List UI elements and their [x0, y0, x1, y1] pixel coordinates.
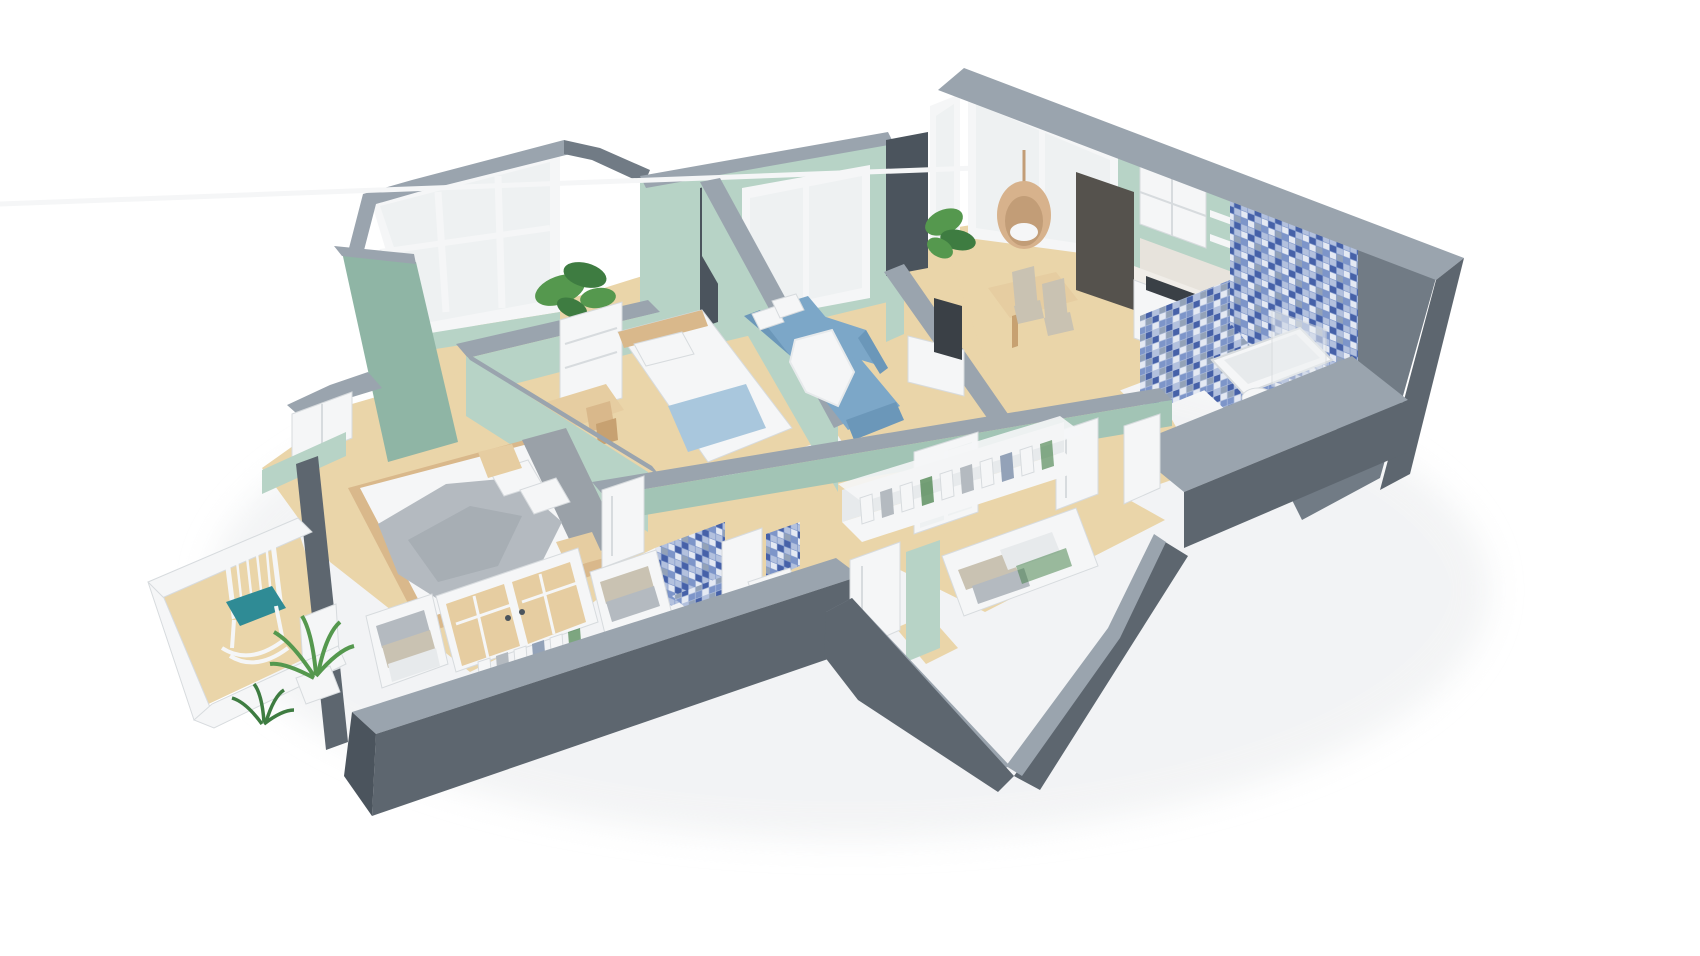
door-bathroom	[1124, 414, 1160, 504]
wall-jog	[564, 140, 650, 184]
floorplan-render	[0, 0, 1700, 956]
door-master	[602, 476, 644, 568]
isometric-apartment-scene	[0, 0, 1700, 956]
entrance-mint-wall	[906, 540, 940, 662]
tv-screen	[934, 298, 962, 360]
loggia-mullion-v2	[498, 176, 502, 308]
kitchen-pillar	[886, 132, 928, 276]
fridge	[1076, 172, 1134, 310]
